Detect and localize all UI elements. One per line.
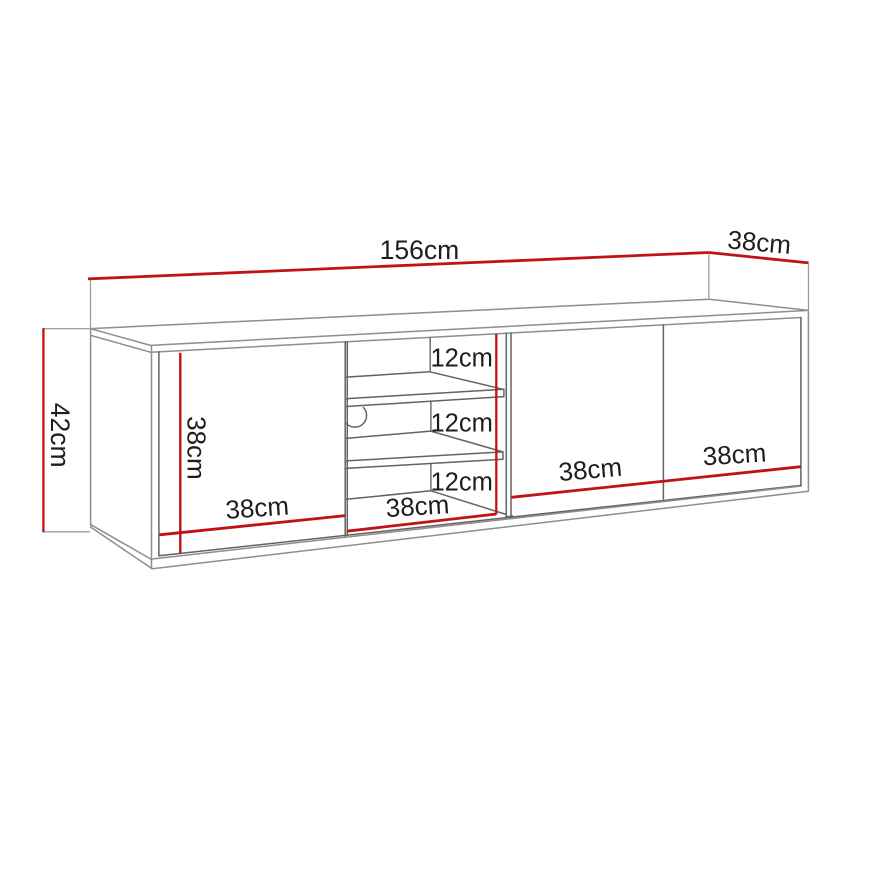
svg-text:12cm: 12cm (431, 345, 493, 373)
svg-text:38cm: 38cm (557, 452, 623, 487)
svg-text:42cm: 42cm (45, 403, 75, 468)
svg-text:12cm: 12cm (431, 410, 493, 438)
svg-text:38cm: 38cm (385, 489, 450, 523)
svg-text:38cm: 38cm (224, 491, 290, 525)
svg-text:38cm: 38cm (182, 416, 212, 480)
svg-text:38cm: 38cm (726, 225, 792, 260)
svg-text:156cm: 156cm (380, 235, 460, 265)
svg-text:38cm: 38cm (702, 438, 767, 472)
